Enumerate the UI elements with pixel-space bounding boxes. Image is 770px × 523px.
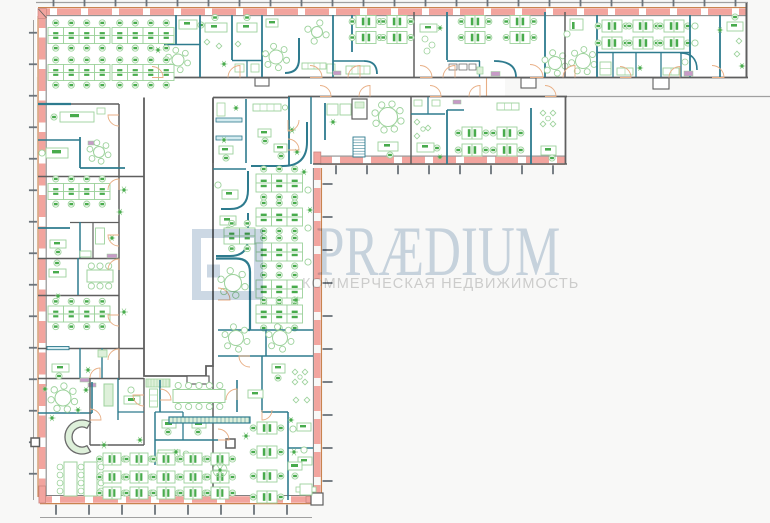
svg-text:КОММЕРЧЕСКАЯ НЕДВИЖИМОСТЬ: КОММЕРЧЕСКАЯ НЕДВИЖИМОСТЬ: [302, 276, 579, 292]
